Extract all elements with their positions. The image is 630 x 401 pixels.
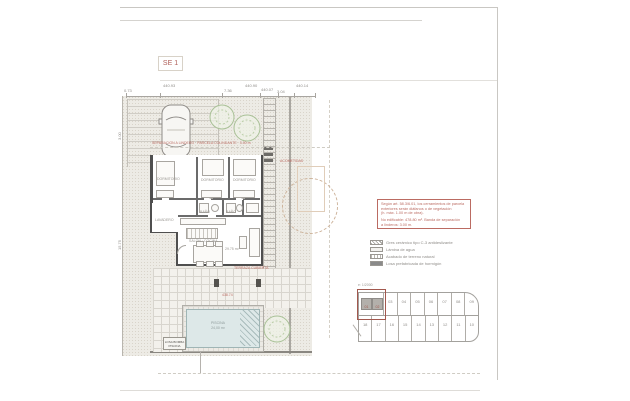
terrace-label: TERRAZA CUBIERTA [234, 266, 269, 270]
car-icon [158, 103, 194, 159]
siteplan-scale: e: 1/2000 [358, 283, 373, 287]
wardrobe [201, 190, 222, 198]
room-label: LAVADERO [155, 218, 174, 222]
plot-cell: 11 [452, 316, 465, 341]
plot-cell: 08 [452, 293, 466, 315]
utility-zone [297, 166, 325, 212]
legend-row: Gres cerámico tipo C-3 antideslizante [370, 239, 453, 245]
legend-label: Gres cerámico tipo C-3 antideslizante [386, 240, 453, 245]
plot-cell: 12 [439, 316, 452, 341]
drawing-sheet: SE 1 0.73 440.93 7.36 440.90 440.07 3.04… [0, 0, 630, 401]
bed [233, 159, 256, 176]
dim-label: 7.36 [224, 89, 232, 93]
legend-row: Acabado de terreno natural [370, 253, 434, 259]
pergola-post [256, 279, 261, 287]
partition [228, 157, 230, 199]
tree-icon [262, 314, 292, 344]
legend-swatch-ceramic [370, 240, 383, 245]
partition [222, 200, 224, 216]
wardrobe [156, 190, 174, 198]
frame-line-bottom [120, 390, 480, 391]
site-key-plan: 01 02 03040506070809 181716151413121110 [358, 292, 479, 342]
legend-label: Acabado de terreno natural [386, 254, 434, 259]
pump-box: LOSA BOMBA PISCINA [163, 337, 186, 350]
bed [156, 161, 175, 186]
plot-cell: 15 [399, 316, 412, 341]
room-label: DORMITORIO [201, 178, 224, 182]
legend-row: Lámina de agua [370, 246, 415, 252]
drain-line [200, 352, 201, 373]
regulation-note-box: Según art. 58.3/6.01, los cerramientos d… [377, 199, 471, 229]
plot-cell: 10 [466, 316, 478, 341]
legend-row: Losa prefabricada de hormigón [370, 260, 441, 266]
frame-line-mid [160, 80, 497, 81]
frame-line-top [120, 7, 498, 8]
room-label: DORMITORIO [233, 178, 256, 182]
plot-cell: 13 [426, 316, 439, 341]
kitchen-counter [180, 218, 226, 225]
room-label: BAÑO [226, 210, 236, 214]
dashed-line-bottom [158, 373, 480, 374]
siteplan-top-row: 01 02 03040506070809 [359, 293, 478, 316]
terrace [153, 268, 311, 308]
pump-box-label: PISCINA [168, 344, 180, 348]
dim-label: 440.07 [261, 88, 273, 92]
boundary-note: SEPARACION A LINDERO · PARCELA COLINDANT… [152, 141, 250, 145]
legend-label: Losa prefabricada de hormigón [386, 261, 441, 266]
frame-line-right [497, 7, 498, 380]
setback-dashed-line [150, 147, 330, 148]
bed [202, 159, 224, 176]
wardrobe [233, 190, 255, 198]
dim-label: 0.73 [124, 89, 132, 93]
partition [196, 200, 198, 216]
room-label: SALON · COCINA [189, 239, 218, 243]
legend-swatch-water [370, 247, 383, 252]
plot-cell: 07 [438, 293, 452, 315]
coffee-table [239, 236, 247, 249]
dim-label: 440.14 [296, 84, 308, 88]
kitchen-island [186, 228, 218, 239]
pool-label: PISCINA [205, 321, 231, 325]
plot-building: 01 [361, 298, 372, 310]
side-path [263, 98, 276, 268]
room-label: 29.75 m² [225, 247, 239, 251]
legend-swatch-concrete [370, 261, 383, 266]
bath-fixture [236, 204, 243, 212]
plot-cell: 16 [386, 316, 399, 341]
plot-building: 02 [372, 298, 383, 310]
bath-fixture [211, 204, 219, 212]
note-line: a linderos: 3.00 m. [381, 223, 467, 228]
room-label: BAÑO [200, 210, 210, 214]
partition [196, 157, 198, 199]
frame-line-top2 [120, 20, 422, 21]
step [264, 153, 273, 156]
legend-label: Lámina de agua [386, 247, 415, 252]
tree-icon [205, 102, 267, 146]
plot-cell: 04 [398, 293, 412, 315]
step [264, 159, 273, 162]
acometida-note: ACOMETIDAS [280, 159, 303, 163]
legend-swatch-terrain [370, 254, 383, 259]
room-label: DORMITORIO [157, 177, 180, 181]
dim-label: 440.90 [245, 84, 257, 88]
plot-cell: 14 [412, 316, 425, 341]
partition [178, 215, 261, 217]
pool-area-label: 24,00 m² [205, 326, 231, 330]
dim-label-left: 3.00 [118, 132, 122, 140]
pergola-post [214, 279, 219, 287]
bath-fixture [246, 203, 259, 213]
plot-cell: 05 [411, 293, 425, 315]
pool-steps [240, 310, 259, 346]
highlighted-plots: 01 02 [359, 293, 384, 315]
dimension-line-top [126, 96, 316, 97]
plot-cell: 09 [465, 293, 478, 315]
dim-label: 440.93 [163, 84, 175, 88]
sofa [249, 228, 260, 257]
dim-label: 3.04 [277, 90, 285, 94]
sheet-tag: SE 1 [158, 56, 183, 71]
level-label: 438.74 [222, 293, 233, 297]
dim-label-left: 15.75 [118, 240, 122, 250]
plot-cell: 06 [425, 293, 439, 315]
plot-cell: 03 [384, 293, 398, 315]
